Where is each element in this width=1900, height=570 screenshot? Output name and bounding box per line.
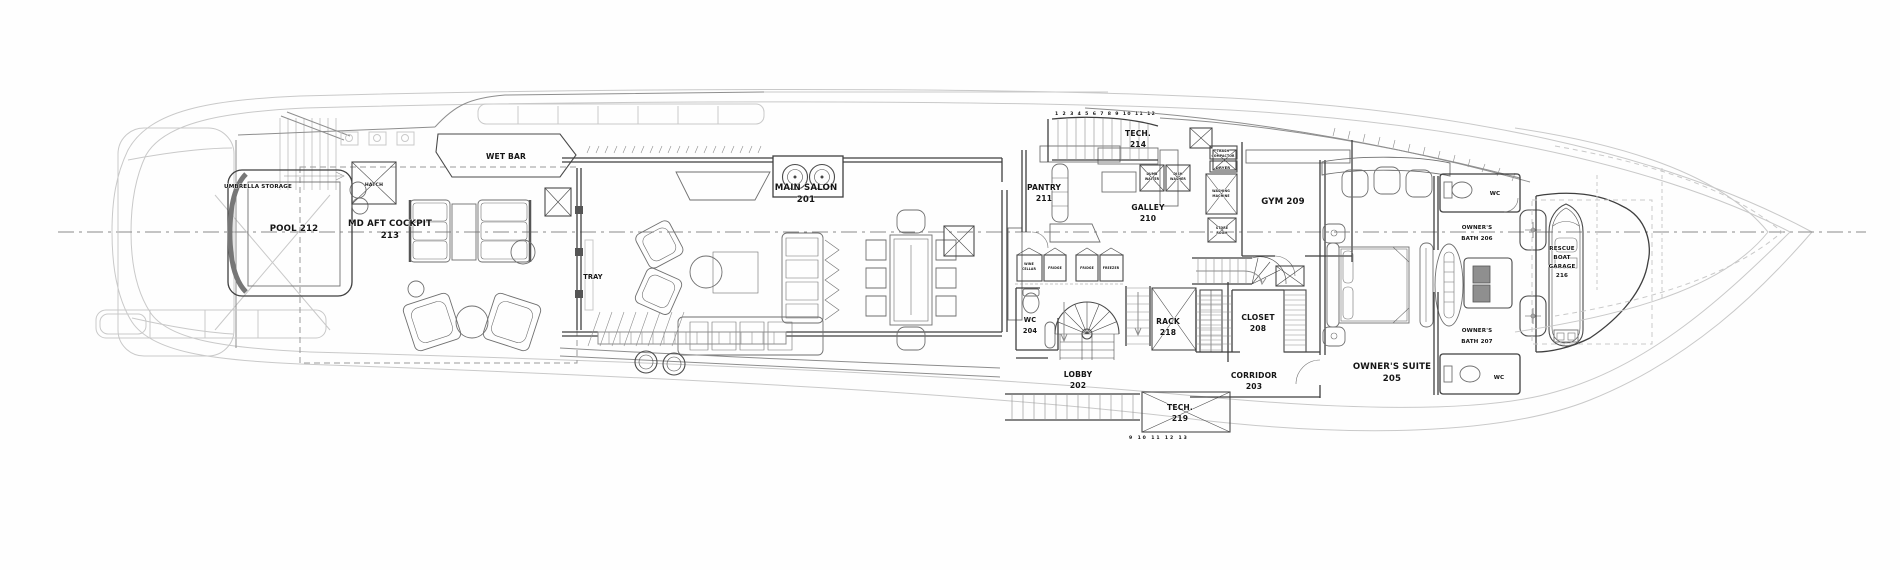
svg-text:216: 216 xyxy=(1556,273,1568,279)
label-closet: CLOSET xyxy=(1241,313,1275,322)
label-dish-washer: DISH xyxy=(1173,172,1182,176)
svg-text:WAITER: WAITER xyxy=(1145,177,1160,181)
label-md-aft-cockpit: MD AFT COCKPIT xyxy=(348,219,432,229)
svg-text:203: 203 xyxy=(1246,382,1262,391)
label-wc-fwd-top: WC xyxy=(1490,191,1501,197)
svg-text:219: 219 xyxy=(1172,414,1188,423)
label-wc-fwd-bottom: WC xyxy=(1494,375,1505,381)
svg-text:218: 218 xyxy=(1160,328,1176,337)
label-wet-bar: WET BAR xyxy=(486,152,526,161)
svg-text:204: 204 xyxy=(1023,327,1037,335)
wc-fwd-top xyxy=(1440,174,1520,212)
sink-bottom xyxy=(1520,296,1546,336)
gym xyxy=(1242,140,1352,276)
owners-baths xyxy=(1434,174,1546,395)
label-trash-compactor: TRASH xyxy=(1217,149,1230,153)
label-rescue-boat-garage: RESCUE xyxy=(1549,246,1575,252)
svg-text:202: 202 xyxy=(1070,381,1086,390)
stair-down-aft-of-closet xyxy=(1196,290,1232,352)
deck-hardware xyxy=(341,132,414,145)
svg-text:208: 208 xyxy=(1250,324,1266,333)
svg-text:ROOM: ROOM xyxy=(1216,231,1227,235)
svg-text:205: 205 xyxy=(1383,374,1401,384)
label-dryer: DRYER xyxy=(1216,166,1230,170)
label-tray: TRAY xyxy=(583,273,602,281)
label-washing-machine: WASHING xyxy=(1212,189,1230,193)
label-dumb-waiter: DUMB xyxy=(1146,172,1158,176)
svg-text:WASHER: WASHER xyxy=(1170,177,1186,181)
label-tech-219: TECH. xyxy=(1167,403,1193,412)
svg-text:210: 210 xyxy=(1140,214,1156,223)
label-pantry: PANTRY xyxy=(1027,183,1061,192)
labels: UMBRELLA STORAGE HATCH WET BAR POOL 212 … xyxy=(224,111,1575,441)
svg-text:201: 201 xyxy=(797,195,815,205)
wc-fwd-bottom xyxy=(1440,354,1520,394)
stair-tread-numbers-bottom: 9 10 11 12 13 xyxy=(1129,435,1187,441)
deck-plan-drawing: UMBRELLA STORAGE HATCH WET BAR POOL 212 … xyxy=(0,0,1900,570)
aft-deck-hatch xyxy=(545,188,571,216)
svg-text:MACHINE: MACHINE xyxy=(1212,194,1229,198)
label-umbrella-storage: UMBRELLA STORAGE xyxy=(224,184,292,190)
stair-tread-numbers-top: 1 2 3 4 5 6 7 8 9 10 11 12 xyxy=(1055,111,1155,117)
bed xyxy=(1327,243,1409,327)
cockpit-chairs xyxy=(402,281,542,352)
svg-text:213: 213 xyxy=(381,231,399,241)
label-pool: POOL 212 xyxy=(270,224,319,234)
label-wine-cellar: WINE xyxy=(1024,262,1034,266)
label-owners-bath-207: OWNER'S xyxy=(1462,328,1493,334)
label-rack: RACK xyxy=(1156,317,1181,326)
bow-area xyxy=(1515,128,1782,332)
svg-text:GARAGE: GARAGE xyxy=(1549,264,1576,270)
dining-area xyxy=(866,210,974,350)
label-main-salon: MAIN SALON xyxy=(775,183,838,193)
label-freezer: FREEZER xyxy=(1103,266,1120,270)
sink-top xyxy=(1520,210,1546,250)
tv-cabinet xyxy=(1464,258,1512,308)
rescue-boat-garage xyxy=(1532,193,1652,352)
label-wc-204: WC xyxy=(1024,316,1036,324)
label-galley: GALLEY xyxy=(1131,203,1165,212)
rack-louver-cabinet xyxy=(1200,290,1222,352)
label-fridge-1: FRIDGE xyxy=(1048,266,1062,270)
label-corridor: CORRIDOR xyxy=(1231,371,1277,380)
label-fridge-2: FRIDGE xyxy=(1080,266,1094,270)
label-hatch: HATCH xyxy=(365,182,383,188)
svg-text:211: 211 xyxy=(1036,194,1052,203)
spiral-stair xyxy=(1055,302,1119,360)
svg-text:COMPACTOR: COMPACTOR xyxy=(1211,154,1235,158)
yacht-deck-plan-canvas: UMBRELLA STORAGE HATCH WET BAR POOL 212 … xyxy=(0,0,1900,570)
svg-text:CELLAR: CELLAR xyxy=(1022,267,1036,271)
label-store-room: STORE xyxy=(1216,226,1228,230)
main-salon xyxy=(562,146,1022,355)
label-gym: GYM 209 xyxy=(1261,197,1305,207)
passerelle xyxy=(96,310,326,338)
stair-tech-stbd xyxy=(1005,392,1230,432)
svg-text:BOAT: BOAT xyxy=(1553,255,1570,261)
svg-text:BATH 206: BATH 206 xyxy=(1461,236,1492,242)
label-lobby: LOBBY xyxy=(1064,370,1093,379)
svg-text:BATH 207: BATH 207 xyxy=(1461,339,1492,345)
awning-outline xyxy=(300,167,577,363)
label-owners-bath-206: OWNER'S xyxy=(1462,225,1493,231)
stair-to-corridor xyxy=(1192,257,1304,286)
label-owners-suite: OWNER'S SUITE xyxy=(1353,362,1431,372)
label-tech-214: TECH. xyxy=(1125,129,1151,138)
svg-text:214: 214 xyxy=(1130,140,1146,149)
dining-hatch xyxy=(944,226,974,256)
